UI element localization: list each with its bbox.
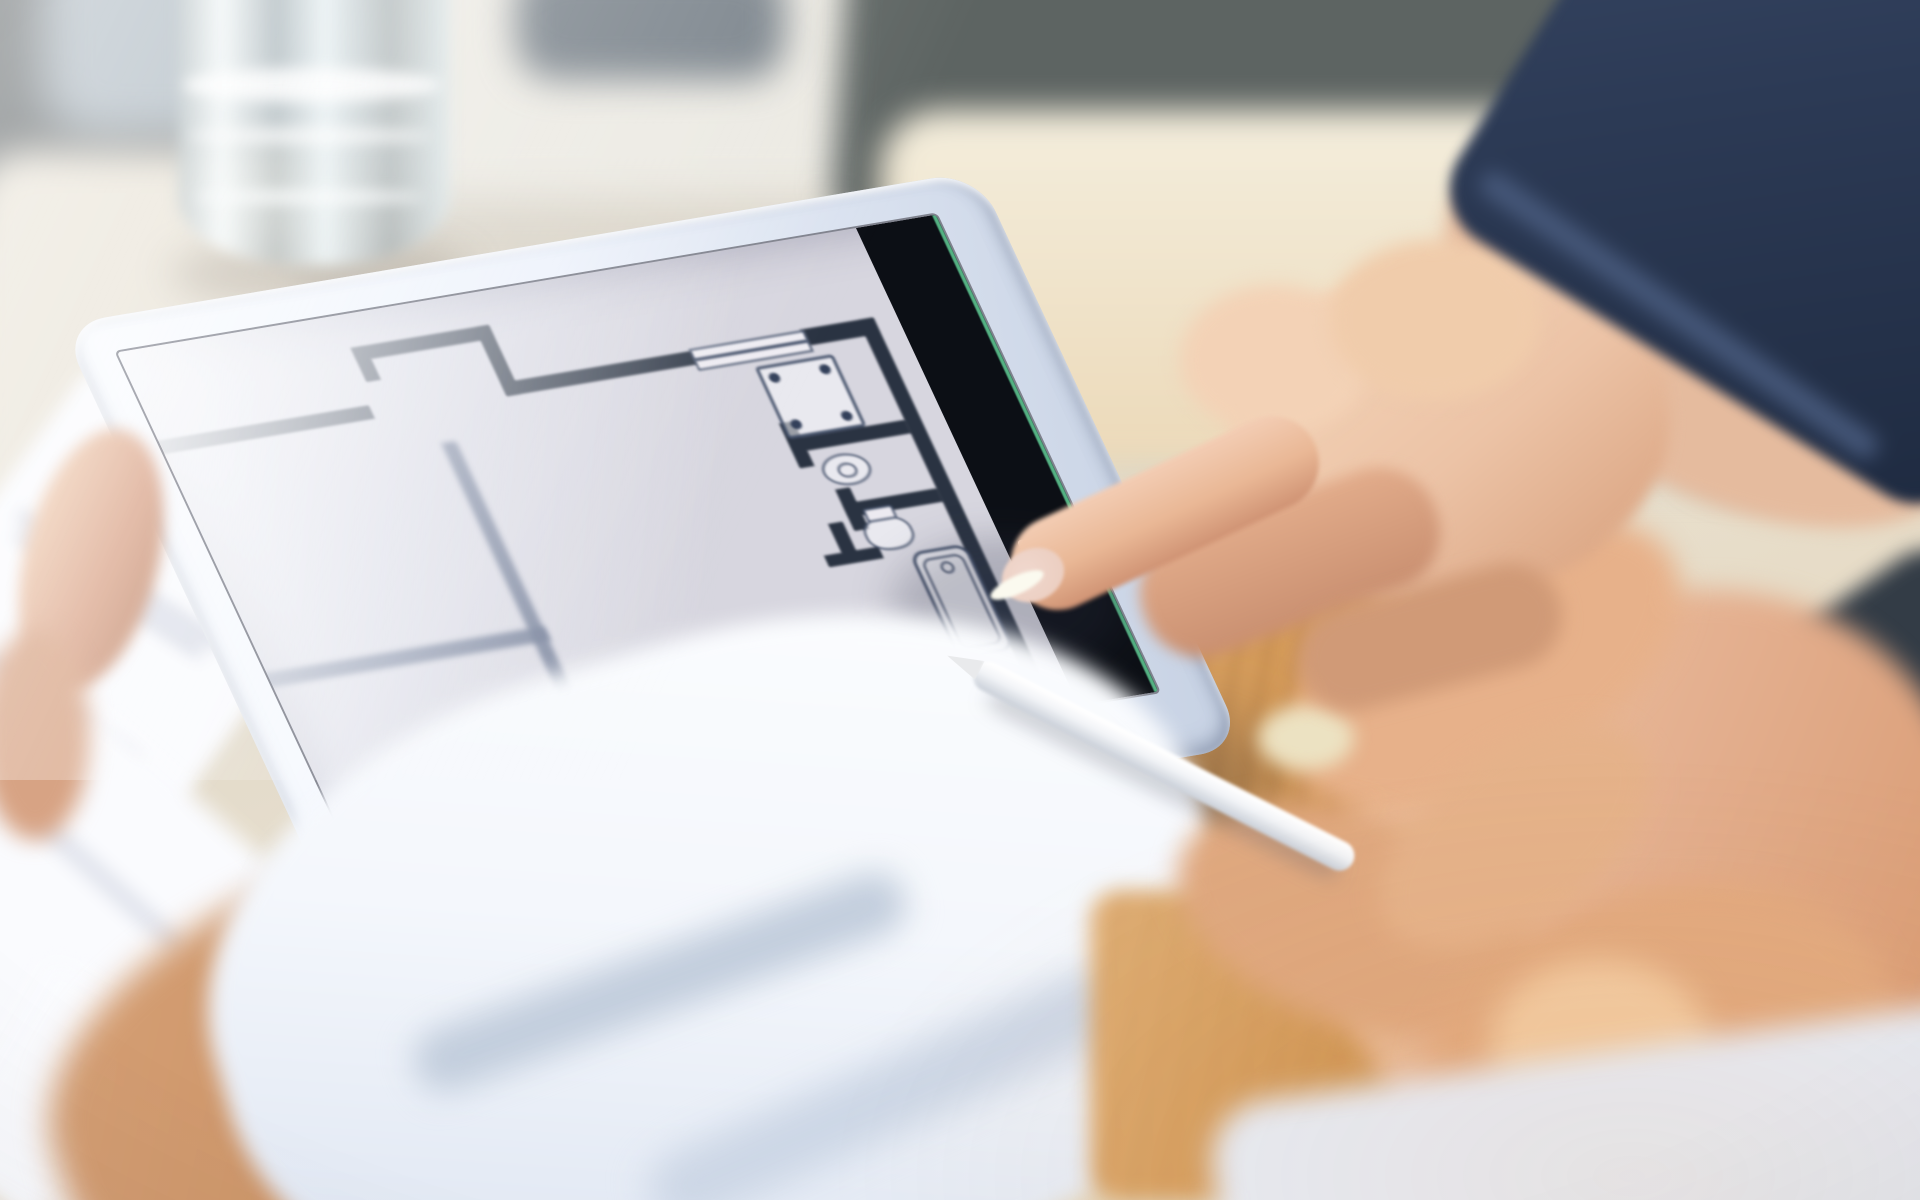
background-wall-light [360, 0, 960, 200]
plan-wall-top-main [500, 351, 697, 397]
paper-drawing-line [32, 814, 183, 951]
sink-icon [816, 450, 877, 488]
plan-wall-living-bottom [208, 626, 551, 697]
plan-wall-wc-left-t [824, 546, 884, 567]
water-glass [178, 0, 450, 265]
glass-highlight [192, 190, 424, 204]
scene [0, 0, 1920, 1200]
stylus-hand-fingernail [1258, 706, 1354, 770]
glass-highlight [186, 128, 432, 144]
glass-waterline [182, 68, 440, 102]
background-object [515, 0, 785, 80]
knuckle-highlight [1330, 240, 1540, 400]
plan-wall-alcove-top [350, 325, 495, 362]
toilet-icon [858, 513, 920, 553]
plan-wall-top-left [129, 405, 375, 459]
kitchen-table-icon [755, 354, 867, 439]
